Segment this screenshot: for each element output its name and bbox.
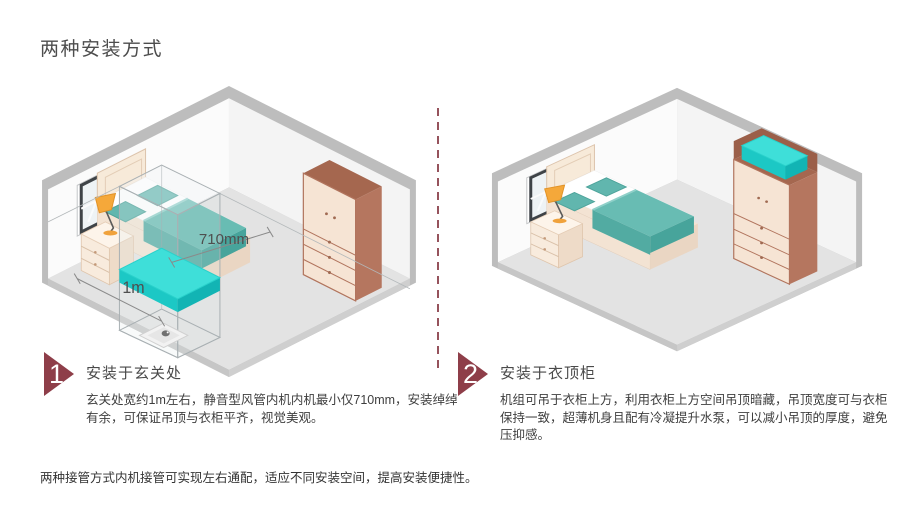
dimension-depth-label: 1m [122,279,144,297]
bedroom-wardrobe-illustration [483,86,881,354]
section-install-hallway: 1 安装于玄关处 玄关处宽约1m左右，静音型风管内机内机最小仅710mm，安装绰… [44,352,429,427]
installation-methods-infographic: 两种安装方式 [0,0,899,511]
step-number: 2 [463,359,478,390]
page-title: 两种安装方式 [40,34,163,61]
section-heading: 安装于衣顶柜 [500,352,870,383]
dashed-divider [437,108,439,372]
section-body: 机组可吊于衣柜上方，利用衣柜上方空间吊顶暗藏，吊顶宽度可与衣柜保持一致，超薄机身… [500,392,898,445]
wardrobe [303,160,381,301]
step-number: 1 [49,359,64,390]
footer-note: 两种接管方式内机接管可实现左右通配，适应不同安装空间，提高安装便捷性。 [40,467,478,486]
dimension-width-label: 710mm [199,231,249,248]
section-install-wardrobe-top: 2 安装于衣顶柜 机组可吊于衣柜上方，利用衣柜上方空间吊顶暗藏，吊顶宽度可与衣柜… [458,352,870,445]
section-body: 玄关处宽约1m左右，静音型风管内机内机最小仅710mm，安装绰绰有余，可保证吊顶… [86,392,458,427]
bedroom-hallway-illustration: 710mm 1m [33,84,435,380]
step-1-badge: 1 [44,352,74,396]
step-2-badge: 2 [458,352,488,396]
section-heading: 安装于玄关处 [86,352,429,383]
